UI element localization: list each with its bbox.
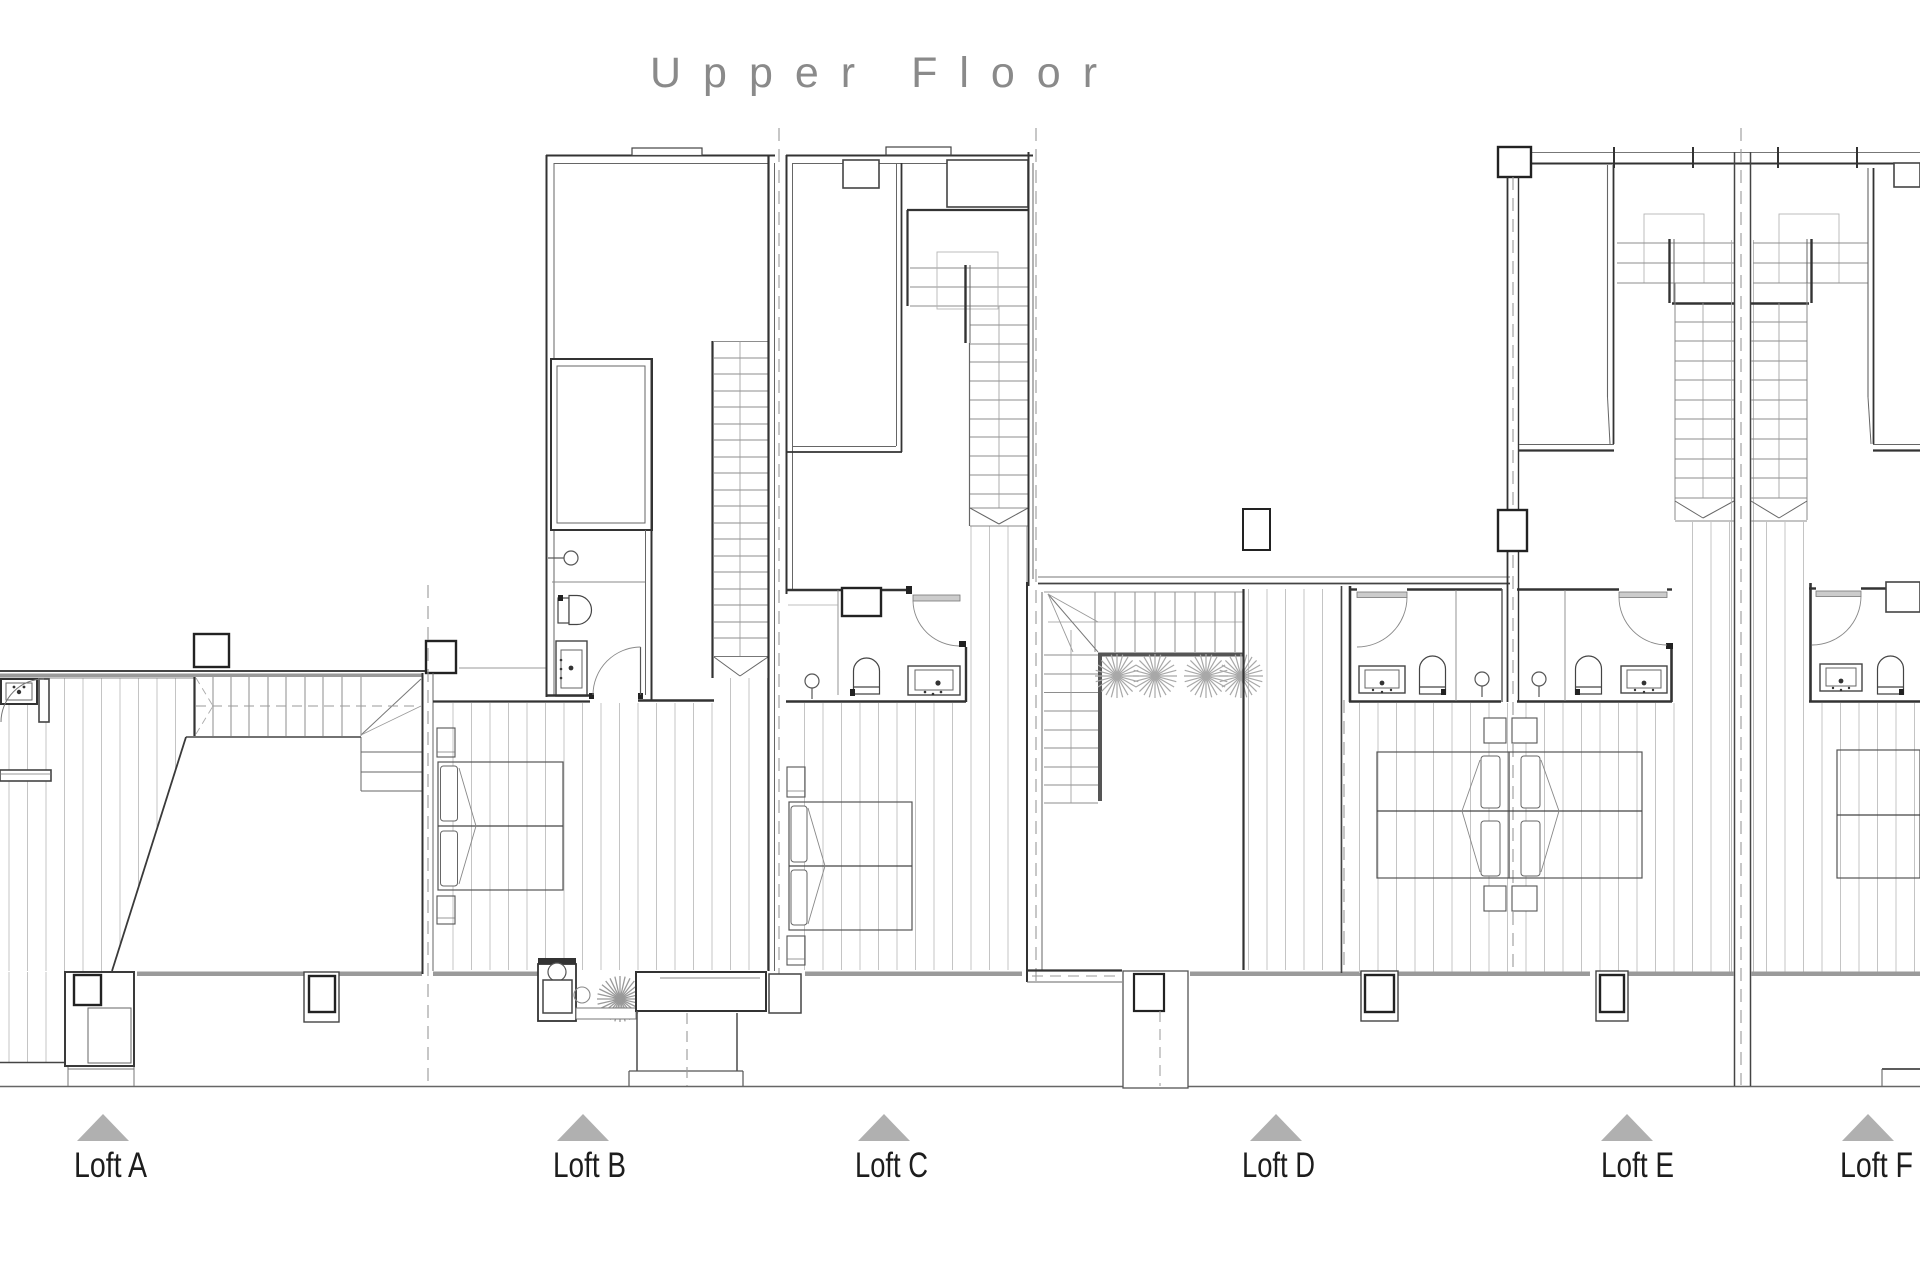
svg-text:Loft B: Loft B (553, 1146, 626, 1185)
svg-text:Loft D: Loft D (1242, 1146, 1315, 1185)
svg-text:Loft E: Loft E (1601, 1146, 1674, 1185)
svg-text:Loft F: Loft F (1840, 1146, 1913, 1185)
svg-text:Upper Floor: Upper Floor (650, 49, 1119, 97)
svg-text:Loft A: Loft A (74, 1146, 148, 1185)
svg-text:Loft C: Loft C (855, 1146, 928, 1185)
